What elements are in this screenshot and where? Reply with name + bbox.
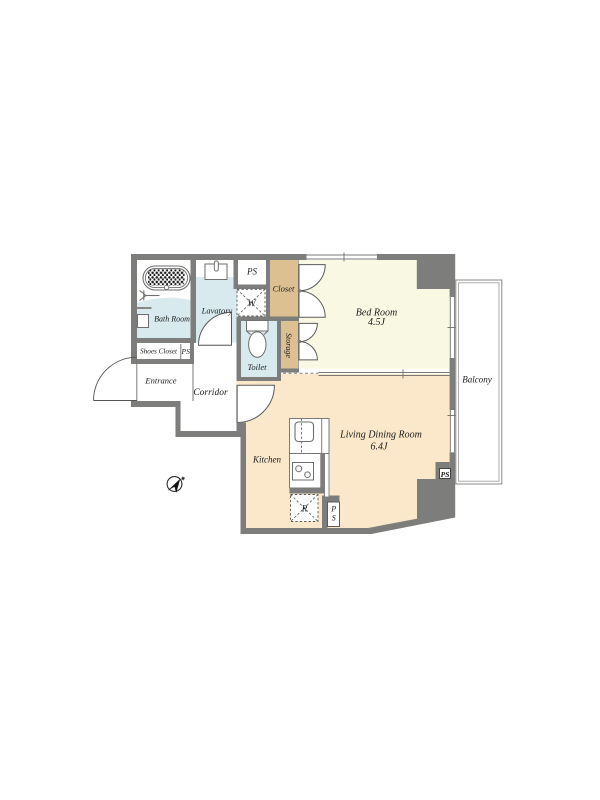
svg-text:Kitchen: Kitchen <box>252 455 281 465</box>
svg-text:P: P <box>330 505 336 514</box>
svg-text:6.4J: 6.4J <box>371 441 389 452</box>
svg-text:Toilet: Toilet <box>247 362 267 372</box>
svg-text:Corridor: Corridor <box>193 388 228 398</box>
svg-text:PS: PS <box>246 267 257 277</box>
svg-text:Shoes Closet: Shoes Closet <box>140 347 178 355</box>
svg-text:Living Dining Room: Living Dining Room <box>339 429 422 440</box>
svg-text:Storage: Storage <box>284 333 293 358</box>
svg-text:Closet: Closet <box>273 283 295 293</box>
svg-text:Entrance: Entrance <box>144 375 176 385</box>
svg-text:Balcony: Balcony <box>462 375 492 385</box>
svg-text:Lavatory: Lavatory <box>201 305 233 315</box>
svg-text:PS: PS <box>181 347 191 356</box>
svg-text:S: S <box>332 514 336 523</box>
svg-text:R: R <box>301 503 308 513</box>
svg-text:4.5J: 4.5J <box>368 317 386 328</box>
svg-text:PS: PS <box>441 470 450 479</box>
svg-text:Bath Room: Bath Room <box>154 315 190 324</box>
